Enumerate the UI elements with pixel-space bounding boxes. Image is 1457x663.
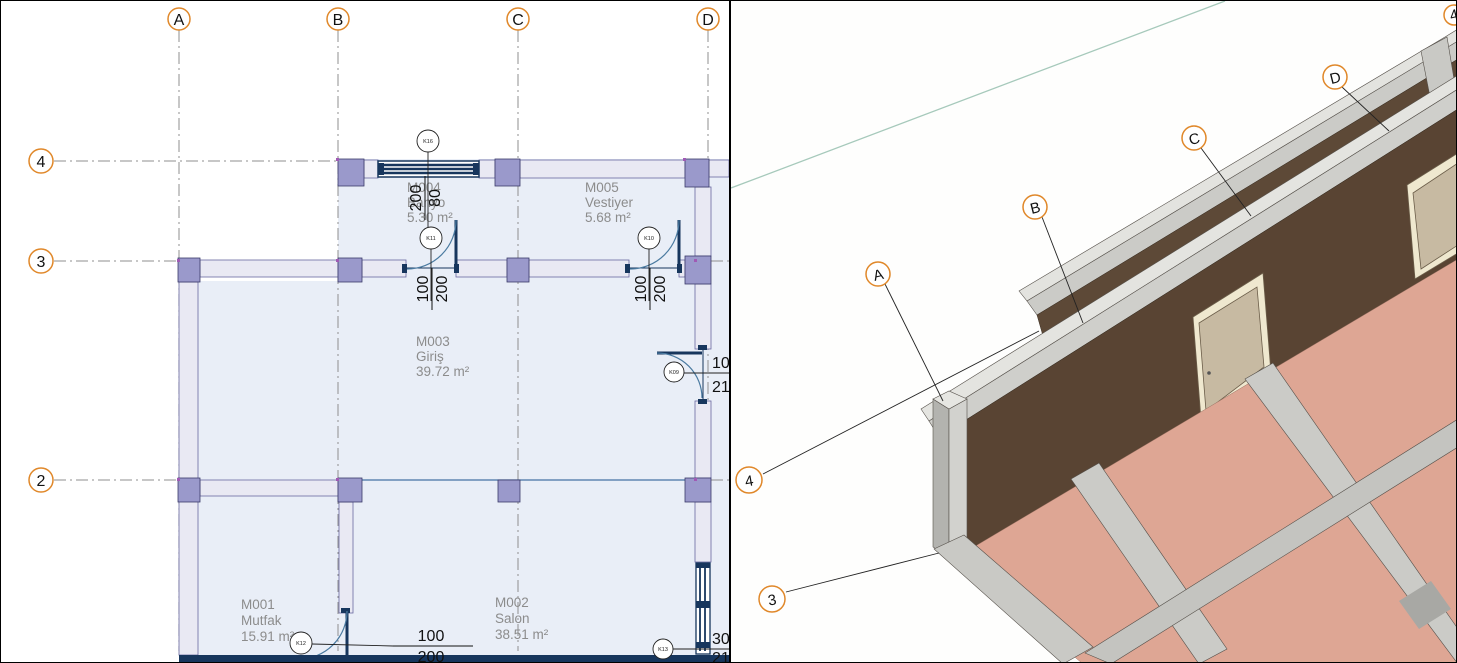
- svg-text:Mutfak: Mutfak: [241, 613, 282, 628]
- svg-text:K12: K12: [296, 641, 306, 647]
- grid-bubble-d: D: [702, 12, 714, 29]
- floor-plan-view[interactable]: A B C D 4 3 2 M004 Banyo 5.30 m² M005 Ve…: [1, 1, 729, 663]
- svg-text:K10: K10: [644, 236, 654, 242]
- grid-bubble-2: 2: [37, 473, 46, 490]
- svg-text:100: 100: [415, 276, 432, 303]
- svg-text:39.72 m²: 39.72 m²: [416, 364, 470, 379]
- grid-bubbles-top[interactable]: A B C D: [168, 8, 719, 30]
- svg-text:K09: K09: [669, 370, 679, 376]
- svg-text:M003: M003: [416, 334, 450, 349]
- svg-text:5.68 m²: 5.68 m²: [585, 210, 631, 225]
- svg-text:100: 100: [418, 628, 445, 645]
- grid-bubble-c: C: [512, 12, 524, 29]
- svg-text:38.51 m²: 38.51 m²: [495, 627, 549, 642]
- svg-text:K11: K11: [426, 236, 435, 242]
- svg-text:200: 200: [434, 276, 451, 303]
- svg-text:200: 200: [408, 185, 425, 212]
- svg-text:15.91 m²: 15.91 m²: [241, 629, 295, 644]
- svg-text:M001: M001: [241, 597, 275, 612]
- grid-bubble-3: 3: [37, 254, 46, 271]
- corner-column[interactable]: [933, 391, 967, 557]
- svg-text:Vestiyer: Vestiyer: [585, 195, 634, 210]
- svg-text:M002: M002: [495, 595, 529, 610]
- svg-text:21: 21: [712, 379, 729, 396]
- bottom-wall-cut: [179, 655, 729, 663]
- svg-text:30: 30: [712, 631, 729, 648]
- application-window: A B C D 4 3 2 M004 Banyo 5.30 m² M005 Ve…: [0, 0, 1457, 663]
- window-top[interactable]: [378, 161, 479, 177]
- grid-bubbles-left[interactable]: 4 3 2: [29, 149, 53, 492]
- grid-bubble-b: B: [333, 12, 344, 29]
- svg-text:Salon: Salon: [495, 611, 530, 626]
- svg-text:100: 100: [633, 276, 650, 303]
- grid-bubble-4: 4: [37, 154, 46, 171]
- 3d-view[interactable]: A B C D 4 3 4: [729, 1, 1457, 663]
- svg-text:80: 80: [427, 189, 444, 207]
- window-right[interactable]: [696, 563, 710, 654]
- svg-text:Giriş: Giriş: [416, 349, 444, 364]
- svg-text:K16: K16: [423, 139, 433, 145]
- svg-text:200: 200: [418, 649, 445, 663]
- svg-text:K13: K13: [658, 647, 668, 653]
- svg-text:M005: M005: [585, 180, 619, 195]
- svg-text:200: 200: [652, 276, 669, 303]
- svg-text:10: 10: [712, 355, 729, 372]
- svg-text:21: 21: [712, 650, 729, 663]
- grid-bubble-a: A: [174, 12, 185, 29]
